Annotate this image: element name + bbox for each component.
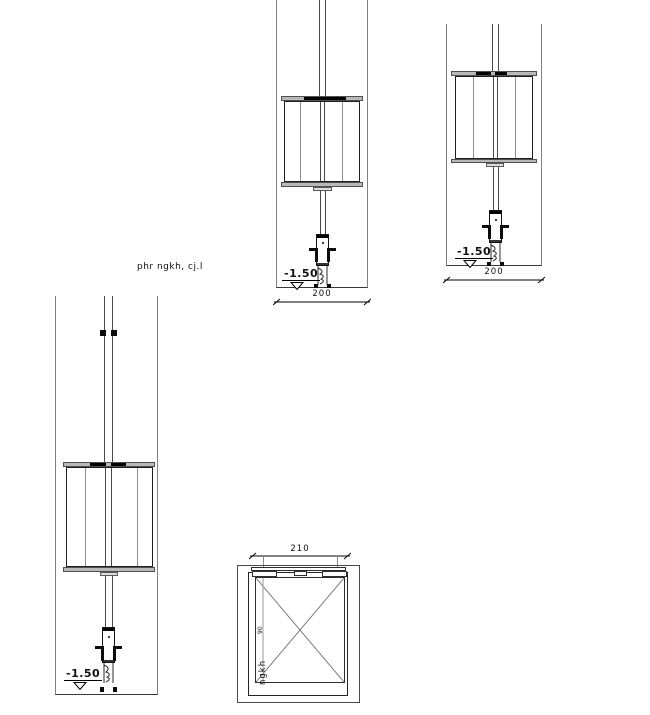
drum-body [455, 76, 533, 159]
drum-body [66, 467, 153, 567]
plan-depth-label: 90 [257, 620, 264, 634]
pole-clamp [100, 330, 106, 336]
elevation-view-left: -1.50 [55, 296, 159, 696]
plan-panel-label: ngkh [258, 649, 268, 685]
drum-panel-divider [300, 102, 301, 181]
cap-weld-mark [476, 72, 491, 75]
cap-weld-mark [90, 463, 106, 466]
cad-drawing-canvas: phr ngkh, cj.l -1.50 200 [0, 0, 650, 715]
anchor-foot [100, 687, 104, 692]
anchor-foot [327, 284, 331, 288]
panel-cross-brace [256, 578, 344, 682]
level-marker-label: -1.50 [282, 268, 320, 281]
anchor-foot [113, 687, 117, 692]
drum-panel-divider [320, 102, 321, 181]
anchor-flange [327, 248, 330, 262]
anchor-flange [488, 225, 491, 239]
dimension-line [273, 296, 371, 308]
note-label: phr ngkh, cj.l [137, 262, 203, 272]
plan-dimension-line [249, 551, 351, 563]
lower-pole [493, 167, 499, 210]
cap-weld-mark [111, 463, 126, 466]
anchor-flange [315, 248, 318, 262]
elevation-view-center: -1.50 200 [276, 0, 368, 312]
anchor-foot [314, 284, 318, 288]
drum-panel-divider [342, 102, 343, 181]
dimension-line [443, 274, 545, 286]
drum-panel-divider [137, 468, 138, 566]
level-marker-triangle-icon [73, 682, 87, 690]
drum-panel-divider [473, 77, 474, 158]
plan-view: 210 90 ngkh [237, 545, 360, 705]
drum-panel-divider [105, 468, 106, 566]
plan-panel [255, 577, 345, 683]
drum-panel-divider [515, 77, 516, 158]
drum-panel-divider [493, 77, 494, 158]
cap-weld-mark [304, 97, 346, 100]
lower-pole [105, 576, 113, 627]
plan-bracket [294, 571, 307, 576]
drum-panel-divider [324, 102, 325, 181]
anchor-foot [487, 262, 491, 266]
anchor-foot [500, 262, 504, 266]
pole-clamp [111, 330, 117, 336]
drum-panel-divider [497, 77, 498, 158]
anchor-flange [113, 646, 116, 661]
level-marker-label: -1.50 [455, 246, 493, 259]
level-marker-triangle-icon [463, 260, 477, 268]
mast-pole [319, 0, 326, 97]
level-marker-triangle-icon [290, 282, 304, 290]
mast-pole [104, 296, 113, 463]
screw-anchor [103, 663, 114, 683]
drum-body [284, 101, 360, 182]
level-marker-label: -1.50 [64, 668, 102, 681]
drum-panel-divider [85, 468, 86, 566]
drum-panel-divider [111, 468, 112, 566]
lower-pole [320, 191, 326, 234]
cap-weld-mark [495, 72, 507, 75]
elevation-view-right: -1.50 200 [446, 24, 542, 286]
mast-pole [492, 24, 499, 72]
anchor-flange [500, 225, 503, 239]
anchor-flange [101, 646, 104, 661]
